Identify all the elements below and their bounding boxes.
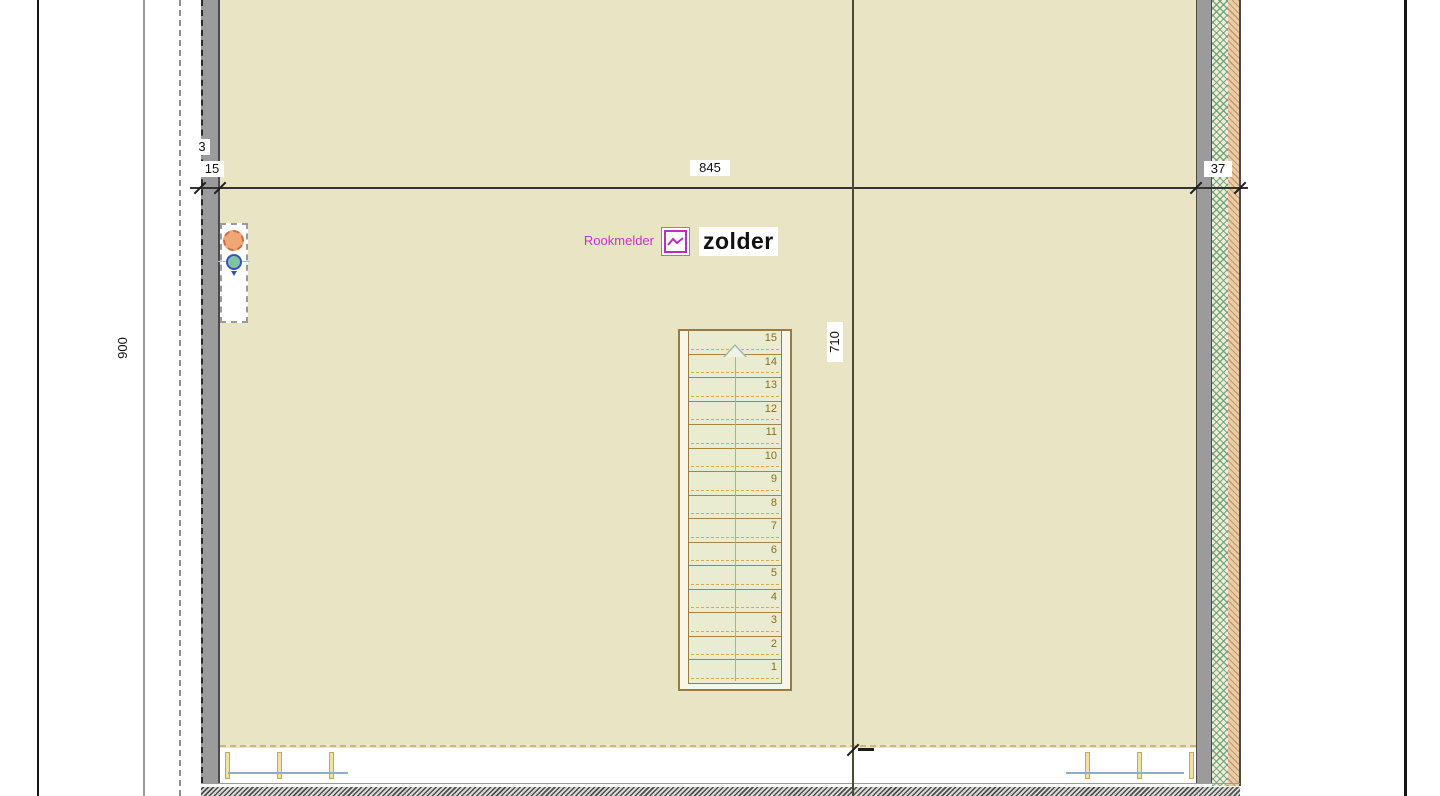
fan-pointer-icon	[231, 271, 237, 276]
right-wall-outer-edge	[1239, 0, 1241, 786]
stair-step-number: 7	[771, 520, 777, 532]
floor-edge-dashed-line	[220, 745, 1196, 747]
sheet-border-left	[37, 0, 39, 796]
stair-step-number: 15	[765, 332, 777, 344]
bottom-wall-hatch	[201, 787, 1240, 796]
top-dimension-line	[190, 187, 1248, 189]
stair-step-number: 10	[765, 450, 777, 462]
ventilation-fan-icon	[226, 254, 242, 270]
dimension-label-span: 845	[690, 160, 730, 176]
stair-step-number: 12	[765, 403, 777, 415]
staircase: 151413121110987654321	[678, 329, 792, 691]
window-mullion	[1189, 752, 1194, 779]
stair-step-number: 13	[765, 379, 777, 391]
window-glass-line	[1066, 772, 1184, 774]
stair-step-number: 8	[771, 497, 777, 509]
window-mullion	[329, 752, 334, 779]
stair-step-number: 6	[771, 544, 777, 556]
stair-step-number: 11	[766, 426, 777, 438]
dimension-label-height: 900	[115, 328, 131, 368]
stair-step-number: 2	[771, 638, 777, 650]
stair-step-number: 14	[765, 356, 777, 368]
detector-symbol-icon	[223, 230, 244, 251]
right-wall-outer-leaf-hatch	[1228, 0, 1239, 786]
dimension-mark	[858, 748, 874, 751]
stair-step-number: 5	[771, 567, 777, 579]
zigzag-glyph	[667, 236, 685, 248]
window-glass-line	[228, 772, 348, 774]
right-wall-inner-leaf	[1196, 0, 1212, 783]
dimension-label-left-wall: 15	[200, 161, 224, 177]
section-line	[852, 0, 854, 796]
dimension-label-stair-run: 710	[827, 322, 843, 362]
dimension-label-right-wall: 37	[1204, 161, 1232, 177]
window-mullion	[277, 752, 282, 779]
smoke-detector-label: Rookmelder	[558, 233, 654, 248]
right-wall-insulation-hatch	[1212, 0, 1228, 786]
window-mullion	[1085, 752, 1090, 779]
stair-step-number: 9	[771, 473, 777, 485]
smoke-detector-icon	[661, 227, 690, 256]
dimension-label-offset: 3	[194, 139, 210, 155]
left-wall	[201, 0, 220, 783]
reference-line	[143, 0, 145, 796]
stair-walk-line	[735, 353, 736, 681]
window-mullion	[225, 752, 230, 779]
window-mullion	[1137, 752, 1142, 779]
facade-line	[201, 783, 1240, 784]
stair-step-number: 1	[771, 661, 777, 673]
stair-step-number: 3	[771, 614, 777, 626]
roof-projection-dashed-line	[179, 0, 181, 796]
sheet-border-right	[1404, 0, 1407, 796]
room-title: zolder	[699, 227, 778, 256]
stair-direction-arrow	[725, 346, 745, 357]
smoke-detector-icon-frame	[664, 230, 687, 253]
stair-step-number: 4	[771, 591, 777, 603]
